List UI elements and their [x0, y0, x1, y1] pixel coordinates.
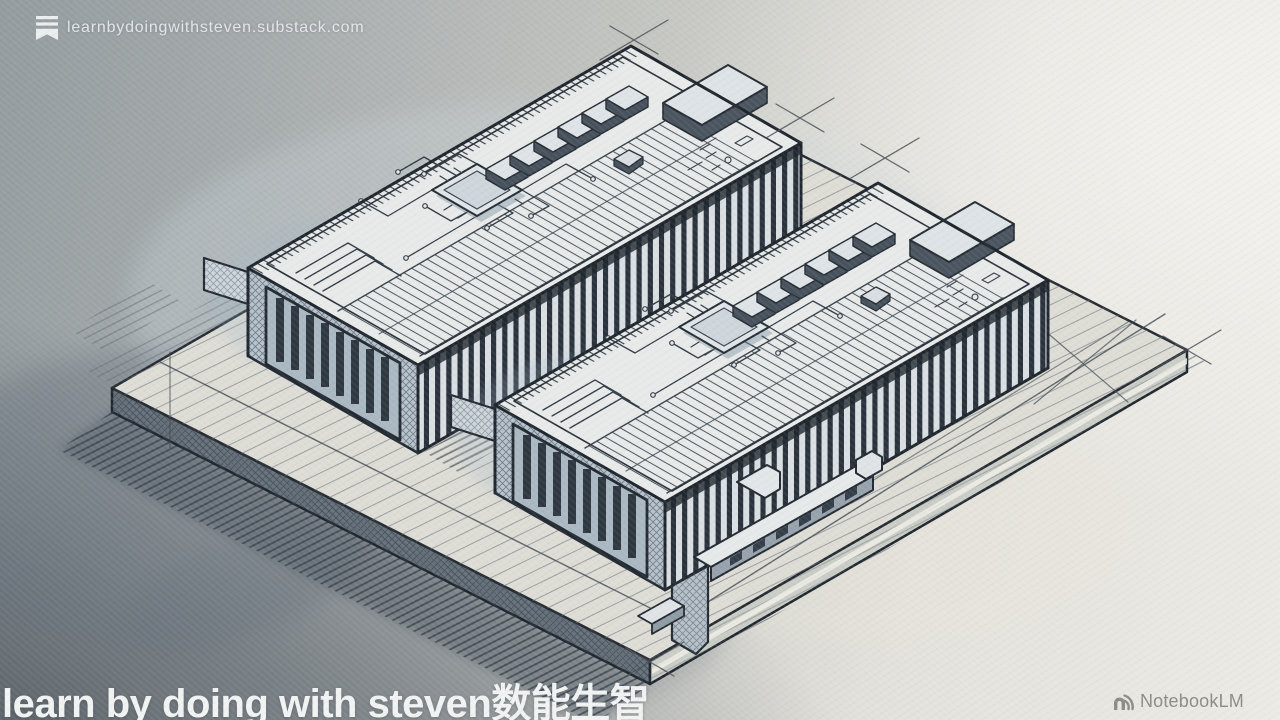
publisher-url: learnbydoingwithsteven.substack.com — [67, 19, 364, 37]
notebooklm-icon — [1111, 690, 1134, 712]
sketch-illustration — [0, 0, 1280, 720]
caption-text: learn by doing with steven数能生智 — [2, 671, 649, 720]
video-frame: learnbydoingwithsteven.substack.com lear… — [0, 0, 1280, 720]
publisher-watermark: learnbydoingwithsteven.substack.com — [36, 16, 364, 40]
notebooklm-label: NotebookLM — [1140, 691, 1244, 712]
substack-bookmark-icon — [36, 16, 58, 40]
notebooklm-watermark: NotebookLM — [1111, 690, 1244, 712]
